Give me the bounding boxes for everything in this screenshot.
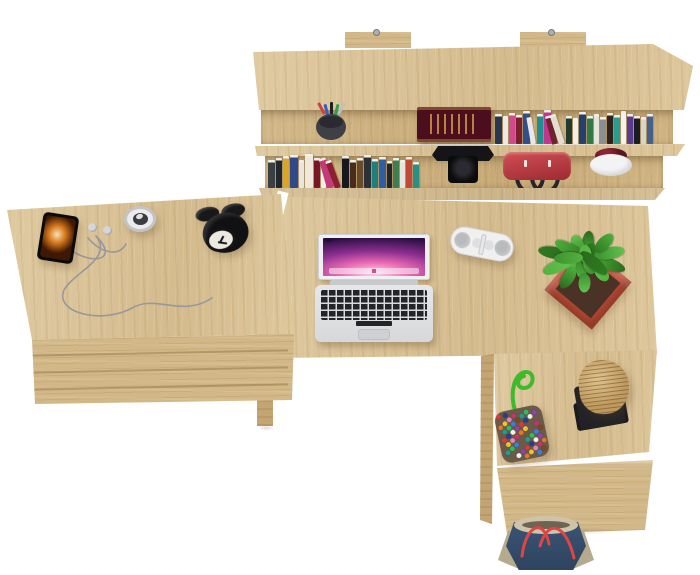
bag-straps: [492, 512, 600, 575]
drawer-line: [32, 383, 288, 390]
book-spine: [516, 115, 522, 144]
plant-foliage: [540, 215, 636, 305]
pouch-body: [493, 404, 551, 465]
left-cabinet: [2, 192, 294, 410]
alarm-hand-minute: [218, 242, 227, 245]
bead: [516, 453, 522, 459]
bead: [537, 449, 543, 455]
book-row-lower: [268, 148, 432, 188]
book-spine: [503, 116, 508, 144]
book-spine: [537, 114, 543, 144]
red-handbag: [503, 150, 571, 194]
camera: [432, 146, 494, 186]
speaker-grille: [493, 239, 512, 258]
handbag-tag: [548, 160, 551, 167]
book-spine: [495, 114, 502, 144]
shelf-top-slab: [253, 44, 693, 110]
book-spine: [379, 157, 386, 188]
book-spine: [350, 160, 356, 188]
white-planter: [590, 148, 632, 176]
book-spine: [283, 156, 289, 188]
laptop-display: [323, 238, 425, 276]
tote-bag: [492, 512, 600, 575]
bead: [505, 450, 511, 456]
scene-desk-set-top-view: [0, 0, 700, 575]
book-spine: [400, 160, 405, 188]
laptop-spacebar: [356, 321, 392, 326]
pencil-cup: [316, 102, 348, 142]
potted-plant: [540, 215, 636, 337]
bead: [495, 414, 501, 420]
silver-clock: [124, 206, 156, 232]
book-spine: [305, 154, 313, 188]
book-spine: [621, 111, 626, 144]
shelf-lower-opening: [265, 156, 663, 188]
smartphone-screen: [40, 215, 76, 261]
book-spine: [634, 116, 640, 144]
book-spine: [299, 160, 304, 188]
book-spine: [290, 155, 298, 188]
book-spine: [357, 158, 363, 188]
camera-lens: [448, 156, 478, 183]
featured-book: [417, 107, 491, 142]
pencil-cup-rim: [319, 116, 343, 128]
book-spine: [566, 116, 572, 144]
shelf-mount-pin: [548, 29, 555, 36]
shelf-mount-pin: [373, 29, 380, 36]
earbud: [88, 223, 97, 232]
book-spine: [276, 158, 282, 188]
book-row-upper: [495, 102, 667, 144]
dock-icon: [372, 269, 376, 273]
handbag-body: [503, 152, 571, 180]
book-spine: [587, 116, 593, 144]
paper-block-display: [570, 355, 634, 435]
book-spine: [406, 157, 412, 188]
book-spine: [509, 113, 515, 144]
earbud: [103, 226, 112, 235]
book-spine: [607, 113, 613, 144]
bead: [524, 453, 530, 459]
book-spine: [641, 117, 646, 144]
book-spine: [413, 162, 419, 188]
book-spine: [614, 115, 620, 144]
planter-pot: [590, 154, 632, 176]
smartphone: [36, 211, 79, 264]
wall-shelf: [253, 30, 693, 198]
shelf-upper-opening: [261, 110, 673, 144]
plant-leaf: [578, 273, 591, 293]
handbag-tag: [524, 160, 527, 167]
book-spine: [627, 114, 633, 144]
book-spine: [647, 114, 653, 144]
menu-bar-mark: [326, 239, 332, 242]
book-spine: [594, 114, 599, 144]
laptop: [314, 232, 434, 344]
laptop-body: [315, 285, 433, 342]
laptop-screen-bezel: [318, 234, 430, 280]
bead-pouch: [494, 364, 552, 460]
book-spine: [393, 158, 399, 188]
book-spine: [579, 112, 586, 144]
book-spine: [600, 117, 606, 144]
drawer-line: [32, 366, 288, 373]
book-spine: [387, 161, 392, 188]
book-spine: [268, 160, 275, 188]
book-spine: [372, 159, 378, 188]
book-spine: [573, 118, 578, 144]
cabinet-drawer-front: [2, 328, 294, 410]
laptop-trackpad: [358, 329, 390, 340]
book-spine: [364, 155, 371, 188]
book-spine: [342, 156, 349, 188]
laptop-keyboard: [321, 290, 427, 320]
speaker-grille: [453, 231, 472, 250]
floor-shadow: [255, 424, 277, 432]
drawer-line: [32, 349, 288, 356]
dock: [329, 268, 419, 274]
